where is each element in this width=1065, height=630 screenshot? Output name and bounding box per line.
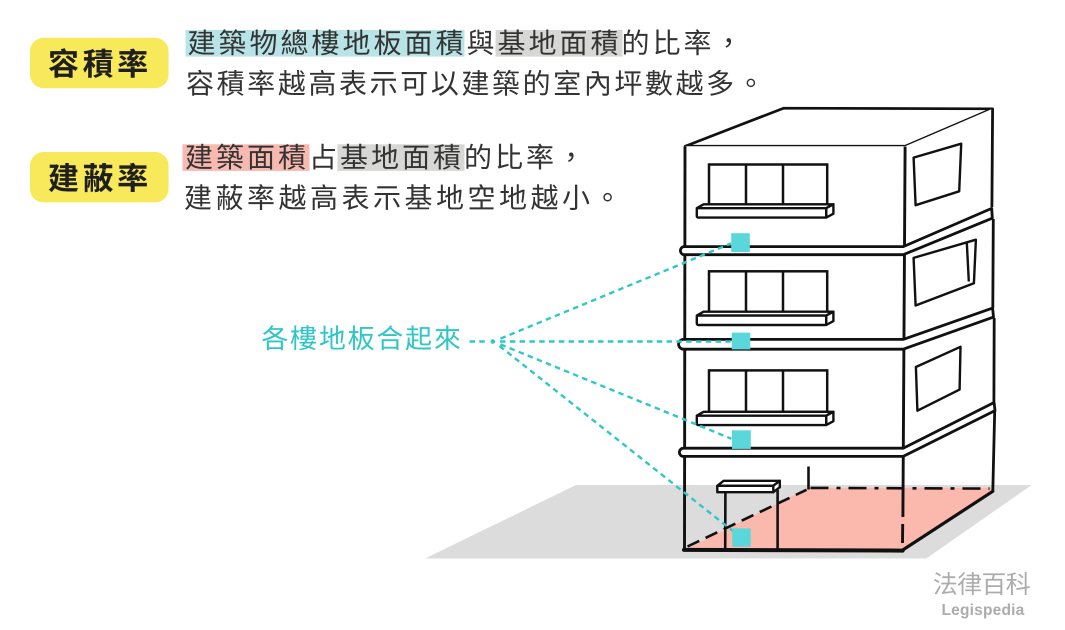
svg-text:Legispedia: Legispedia [942, 602, 1025, 619]
